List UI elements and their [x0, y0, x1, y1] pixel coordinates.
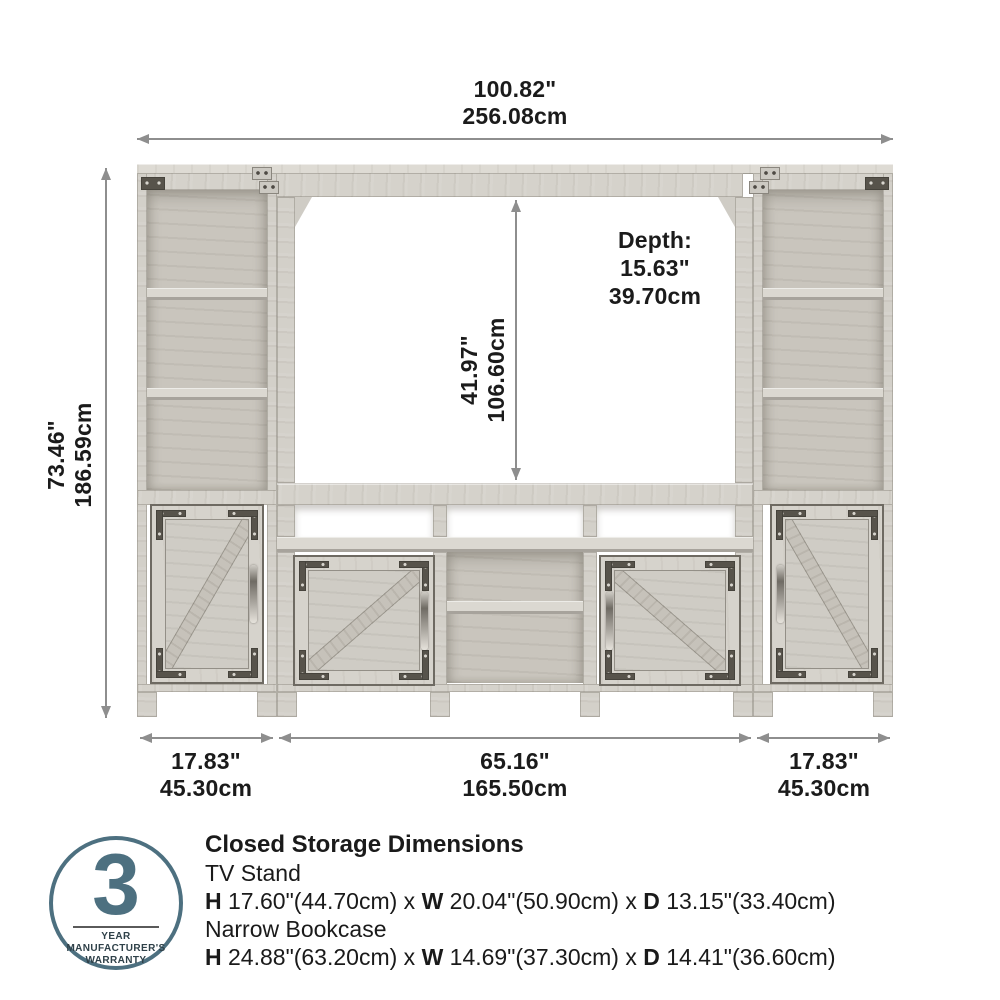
media-slot [447, 505, 583, 537]
tv-opening-height-inches: 41.97" [456, 285, 483, 455]
corner-bracket-icon [776, 510, 806, 540]
left-bookcase-cabinet-rail [137, 490, 277, 505]
corner-bracket-icon [399, 650, 429, 680]
right-bookcase-left-stile [753, 173, 763, 692]
corner-bracket-icon [776, 648, 806, 678]
right-bookcase-width-arrow [757, 737, 890, 739]
storage-item-name: TV Stand [205, 859, 836, 887]
depth-cm: 39.70cm [570, 282, 740, 310]
door-handle [421, 592, 428, 650]
tv-stand-leg [580, 692, 600, 717]
badge-divider [73, 926, 159, 928]
storage-item-name: Narrow Bookcase [205, 915, 836, 943]
spec-value: 24.88"(63.20cm) x [222, 944, 422, 970]
tv-stand-leg [733, 692, 753, 717]
left-bookcase-width-label: 17.83" 45.30cm [126, 748, 286, 802]
tv-bridge-right-corbel [718, 197, 735, 227]
tv-bridge-left-pilaster [277, 197, 295, 483]
warranty-badge: 3 YEAR MANUFACTURER'S WARRANTY [49, 836, 183, 970]
shelf [147, 388, 267, 400]
metal-plate-icon [749, 181, 769, 194]
warranty-text: YEAR MANUFACTURER'S WARRANTY [53, 931, 179, 967]
tv-stand-width-arrow [279, 737, 751, 739]
product-dimension-diagram: 100.82" 256.08cm 73.46" 186.59cm [0, 0, 1000, 1000]
barn-door-tv-stand-left [293, 555, 435, 686]
tv-bridge-left-corbel [295, 197, 312, 227]
tv-stand-width-cm: 165.50cm [415, 775, 615, 802]
depth-inches: 15.63" [570, 254, 740, 282]
left-bookcase-left-stile [137, 173, 147, 692]
spec-value: 14.41"(36.60cm) [660, 944, 836, 970]
right-bookcase-leg [753, 692, 773, 717]
spec-key: W [422, 944, 444, 970]
right-bookcase-bottom-rail [753, 684, 893, 692]
storage-item-specs: H 17.60"(44.70cm) x W 20.04"(50.90cm) x … [205, 887, 836, 915]
left-bookcase-width-inches: 17.83" [126, 748, 286, 775]
tv-stand-divider [583, 552, 597, 692]
tv-stand-top [277, 483, 753, 505]
left-bookcase-right-stile [267, 173, 277, 692]
tv-stand-divider [583, 505, 597, 537]
corner-bracket-icon [705, 561, 735, 591]
tv-bridge-beam [267, 173, 743, 197]
corner-bracket-icon [156, 510, 186, 540]
warranty-text-line1: YEAR MANUFACTURER'S [53, 931, 179, 955]
media-slot [295, 505, 433, 537]
right-bookcase-width-cm: 45.30cm [744, 775, 904, 802]
corner-bracket-icon [605, 650, 635, 680]
barn-door-panel [165, 519, 249, 669]
tv-stand-side [277, 505, 295, 537]
left-bookcase-interior [147, 190, 267, 490]
door-handle [606, 592, 613, 650]
warranty-text-line2: WARRANTY [53, 955, 179, 967]
tv-stand-divider [433, 552, 447, 692]
corner-bracket-icon [228, 648, 258, 678]
barn-door-right-bookcase [770, 504, 884, 684]
right-bookcase-interior [763, 190, 883, 490]
door-handle [777, 565, 784, 623]
depth-label: Depth: 15.63" 39.70cm [570, 226, 740, 310]
metal-plate-icon [259, 181, 279, 194]
spec-value: 14.69"(37.30cm) x [443, 944, 643, 970]
corner-bracket-icon [705, 650, 735, 680]
barn-door-tv-stand-right [599, 555, 741, 686]
storage-dimensions: Closed Storage Dimensions TV Stand H 17.… [205, 831, 836, 971]
spec-key: H [205, 944, 222, 970]
left-bookcase-width-cm: 45.30cm [126, 775, 286, 802]
left-bookcase-leg [137, 692, 157, 717]
corner-bracket-icon [605, 561, 635, 591]
left-bookcase-width-arrow [140, 737, 273, 739]
metal-bracket-icon [865, 177, 889, 190]
door-handle [250, 565, 257, 623]
spec-value: 20.04"(50.90cm) x [443, 888, 643, 914]
barn-door-brace [785, 519, 869, 669]
corner-bracket-icon [399, 561, 429, 591]
shelf [763, 288, 883, 300]
corner-bracket-icon [228, 510, 258, 540]
tv-stand-open-interior [447, 552, 583, 683]
depth-title: Depth: [570, 226, 740, 254]
left-bookcase-bottom-rail [137, 684, 277, 692]
right-bookcase-width-inches: 17.83" [744, 748, 904, 775]
spec-key: D [643, 944, 660, 970]
left-bookcase-leg [257, 692, 277, 717]
tv-opening-height-cm: 106.60cm [483, 285, 510, 455]
shelf [763, 388, 883, 400]
right-bookcase-leg [873, 692, 893, 717]
metal-plate-icon [760, 167, 780, 180]
warranty-years: 3 [92, 846, 140, 925]
barn-door-left-bookcase [150, 504, 264, 684]
corner-bracket-icon [299, 561, 329, 591]
spec-key: H [205, 888, 222, 914]
spec-value: 13.15"(33.40cm) [660, 888, 836, 914]
tv-stand-width-inches: 65.16" [415, 748, 615, 775]
spec-key: D [643, 888, 660, 914]
shelf [447, 601, 583, 614]
spec-value: 17.60"(44.70cm) x [222, 888, 422, 914]
tv-stand-shelf [277, 537, 753, 552]
barn-door-panel [785, 519, 869, 669]
corner-bracket-icon [299, 650, 329, 680]
metal-plate-icon [252, 167, 272, 180]
media-slot [597, 505, 735, 537]
barn-door-brace [165, 519, 249, 669]
right-bookcase-cabinet-rail [753, 490, 893, 505]
tv-stand-side [735, 505, 753, 537]
shelf [147, 288, 267, 300]
storage-title: Closed Storage Dimensions [205, 831, 836, 859]
right-bookcase-width-label: 17.83" 45.30cm [744, 748, 904, 802]
right-bookcase-right-stile [883, 173, 893, 692]
corner-bracket-icon [848, 510, 878, 540]
storage-item-specs: H 24.88"(63.20cm) x W 14.69"(37.30cm) x … [205, 943, 836, 971]
tv-stand-width-label: 65.16" 165.50cm [415, 748, 615, 802]
tv-opening-height-label: 41.97" 106.60cm [456, 285, 510, 455]
tv-opening-height-arrow [515, 200, 517, 480]
tv-stand-divider [433, 505, 447, 537]
tv-stand-leg [277, 692, 297, 717]
corner-bracket-icon [848, 648, 878, 678]
tv-stand-leg [430, 692, 450, 717]
corner-bracket-icon [156, 648, 186, 678]
spec-key: W [422, 888, 444, 914]
metal-bracket-icon [141, 177, 165, 190]
